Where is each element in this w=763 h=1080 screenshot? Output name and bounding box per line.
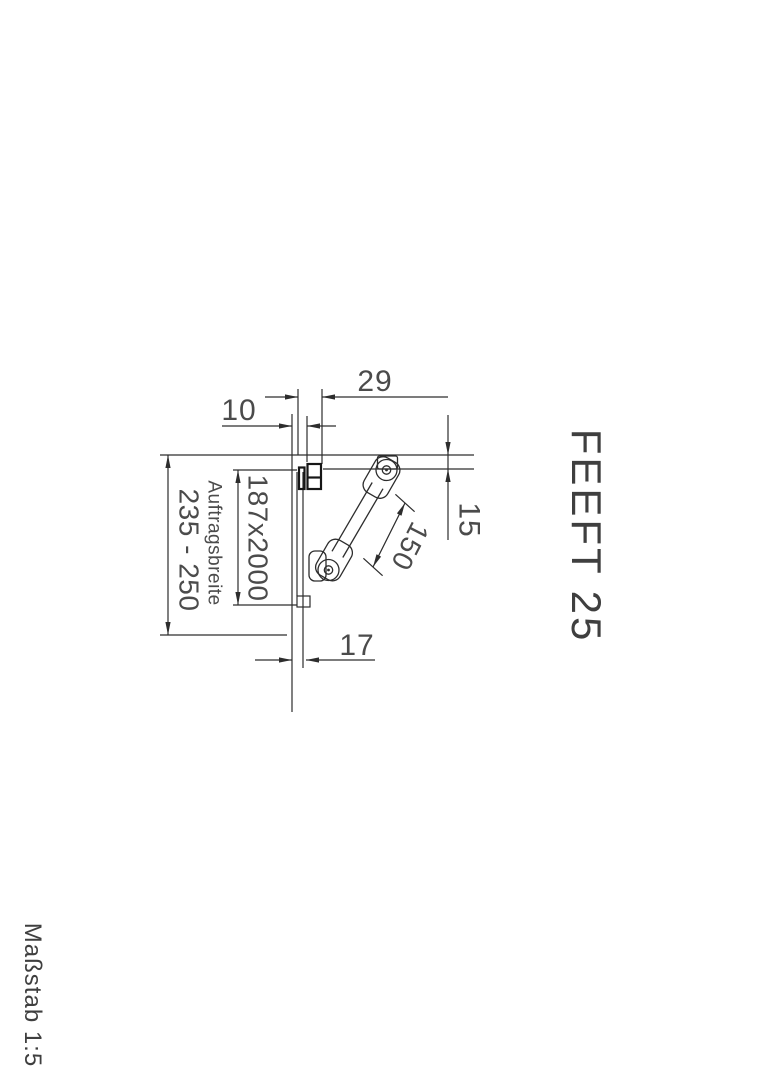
arrow-29-right [322, 394, 335, 399]
arrow-panel-bottom [235, 592, 240, 605]
top-pivot-center-dot [385, 469, 388, 472]
dim-range-value: 235 - 250 [173, 489, 204, 612]
arrow-17-left [279, 657, 292, 662]
arrow-29-left [285, 394, 298, 399]
arrow-15-top [445, 442, 450, 455]
sheet-annotations: FEEFT 25 Maßstab 1:5 [19, 429, 610, 1068]
bracket-left-bar [299, 468, 305, 490]
arrow-range-top [165, 455, 170, 468]
drawing-sheet: 29 10 15 150 17 235 - 250 Auftragsbreite… [0, 0, 763, 1080]
dim-17-value: 17 [339, 629, 374, 662]
dim-panel-size-value: 187x2000 [242, 474, 273, 601]
product-title: FEEFT 25 [563, 429, 610, 644]
technical-drawing-canvas: 29 10 15 150 17 235 - 250 Auftragsbreite… [0, 0, 763, 1080]
arrow-17-right [306, 657, 319, 662]
dim-15-value: 15 [453, 502, 486, 537]
arrow-range-bottom [165, 622, 170, 635]
arrow-150-bottom [373, 554, 381, 567]
dim-150-value: 150 [385, 517, 435, 575]
arrow-150-top [397, 503, 405, 516]
dimension-texts: 29 10 15 150 17 235 - 250 Auftragsbreite… [173, 365, 485, 662]
mounting-bracket-profile [299, 464, 321, 489]
bottom-hinge-body [312, 536, 355, 584]
panel-label: Auftragsbreite [203, 480, 224, 605]
hinge-arm-assembly [309, 453, 403, 584]
scale-note: Maßstab 1:5 [19, 923, 46, 1067]
dim-10-value: 10 [221, 394, 256, 427]
arrow-10-left [279, 423, 292, 428]
arrow-panel-top [235, 470, 240, 483]
bottom-pivot-center-dot [327, 569, 330, 572]
arrow-15-bottom [445, 469, 450, 482]
dim-29-value: 29 [357, 365, 392, 398]
arrow-10-right [307, 423, 320, 428]
